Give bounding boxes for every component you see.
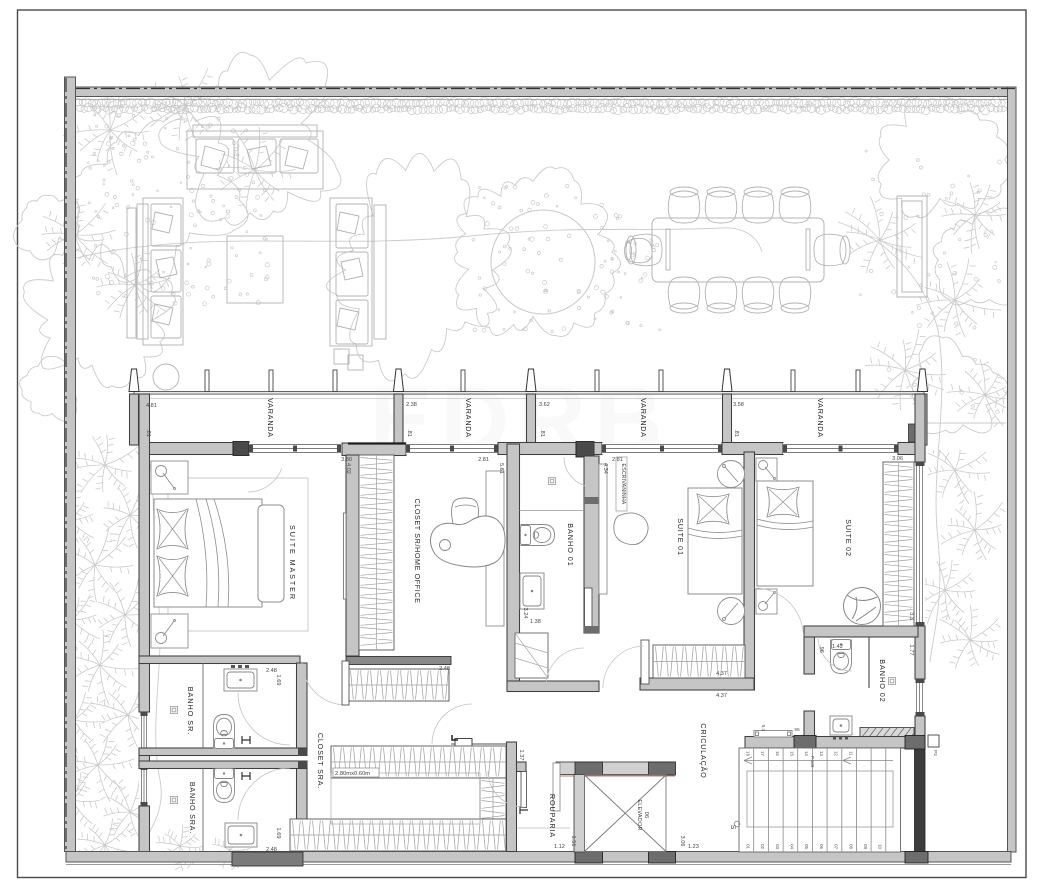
svg-text:4.34: 4.34: [602, 463, 608, 474]
svg-text:1.38: 1.38: [530, 619, 541, 625]
svg-text:1.42: 1.42: [832, 644, 843, 650]
svg-text:2.81: 2.81: [612, 457, 623, 463]
svg-text:2.48: 2.48: [266, 847, 277, 853]
svg-text:06: 06: [819, 844, 824, 849]
svg-text:13: 13: [819, 751, 824, 756]
svg-text:01: 01: [746, 844, 751, 849]
svg-text:2.81: 2.81: [478, 457, 489, 463]
svg-text:1.12: 1.12: [554, 844, 565, 850]
svg-text:CLOSET SRA.: CLOSET SRA.: [316, 733, 325, 789]
svg-text:ROUPARIA: ROUPARIA: [548, 794, 557, 838]
svg-text:VARANDA: VARANDA: [639, 398, 648, 438]
svg-text:15: 15: [790, 751, 795, 756]
svg-text:2.48: 2.48: [439, 666, 450, 672]
svg-text:16: 16: [775, 751, 780, 756]
svg-text:04: 04: [790, 844, 795, 849]
svg-text:3.24: 3.24: [522, 608, 528, 619]
svg-text:.96: .96: [793, 727, 800, 733]
svg-text:4.37: 4.37: [716, 693, 727, 699]
svg-text:4.37: 4.37: [716, 671, 727, 677]
svg-text:1.69: 1.69: [275, 828, 281, 839]
svg-text:3.58: 3.58: [733, 402, 744, 408]
svg-text:14: 14: [804, 751, 809, 756]
svg-text:07: 07: [834, 844, 839, 849]
svg-text:.81: .81: [539, 429, 545, 437]
svg-text:1.51: 1.51: [570, 836, 576, 847]
svg-text:3.06: 3.06: [892, 456, 903, 462]
svg-text:1.77: 1.77: [908, 645, 914, 656]
svg-text:12: 12: [834, 751, 839, 756]
svg-text:09: 09: [863, 844, 868, 849]
svg-text:SUITE 02: SUITE 02: [844, 519, 853, 557]
svg-text:06: 06: [643, 812, 649, 819]
svg-text:2.48: 2.48: [266, 668, 277, 674]
svg-text:BANHO SRA.: BANHO SRA.: [188, 782, 197, 834]
svg-text:17: 17: [760, 751, 765, 756]
svg-text:SUITE MASTER: SUITE MASTER: [288, 525, 297, 601]
svg-text:BANHO SR.: BANHO SR.: [186, 687, 195, 736]
svg-text:2.38: 2.38: [406, 402, 417, 408]
svg-text:.81: .81: [406, 429, 412, 437]
svg-text:05: 05: [804, 844, 809, 849]
svg-text:CLOSET SR/HOME OFFICE: CLOSET SR/HOME OFFICE: [413, 498, 422, 603]
svg-text:08: 08: [848, 844, 853, 849]
svg-text:5.61: 5.61: [498, 463, 504, 474]
svg-text:BANHO 01: BANHO 01: [566, 523, 575, 567]
svg-text:ELEVADOR: ELEVADOR: [636, 799, 642, 830]
svg-text:1.23: 1.23: [688, 844, 699, 850]
svg-text:.81: .81: [733, 429, 739, 437]
svg-text:CRICULAÇÃO: CRICULAÇÃO: [699, 723, 708, 778]
svg-text:BANHO 02: BANHO 02: [878, 659, 887, 703]
svg-text:4.81: 4.81: [146, 403, 157, 409]
svg-text:P3: P3: [933, 750, 938, 756]
svg-text:3.3: 3.3: [908, 612, 914, 620]
svg-text:P.136: P.136: [810, 756, 815, 768]
svg-text:VARANDA: VARANDA: [816, 398, 825, 438]
svg-text:SUITE 01: SUITE 01: [676, 518, 685, 556]
svg-text:1.69: 1.69: [275, 675, 281, 686]
svg-text:3.06: 3.06: [679, 836, 685, 847]
svg-text:3.62: 3.62: [539, 402, 550, 408]
svg-text:2.80mx0.60m: 2.80mx0.60m: [335, 771, 370, 777]
svg-text:VARANDA: VARANDA: [464, 398, 473, 438]
svg-text:11: 11: [848, 751, 853, 756]
svg-text:02: 02: [760, 844, 765, 849]
svg-text:18: 18: [746, 751, 751, 756]
svg-text:VARANDA: VARANDA: [266, 398, 275, 438]
svg-text:5.4: 5.4: [761, 725, 766, 732]
svg-text:ESCRIVANINHA: ESCRIVANINHA: [620, 464, 626, 505]
svg-text:4.02: 4.02: [345, 463, 351, 474]
svg-text:10: 10: [878, 844, 883, 849]
svg-text:1.37: 1.37: [518, 750, 524, 761]
svg-text:03: 03: [775, 844, 780, 849]
svg-text:.81: .81: [145, 429, 151, 437]
svg-text:.96: .96: [818, 645, 824, 653]
